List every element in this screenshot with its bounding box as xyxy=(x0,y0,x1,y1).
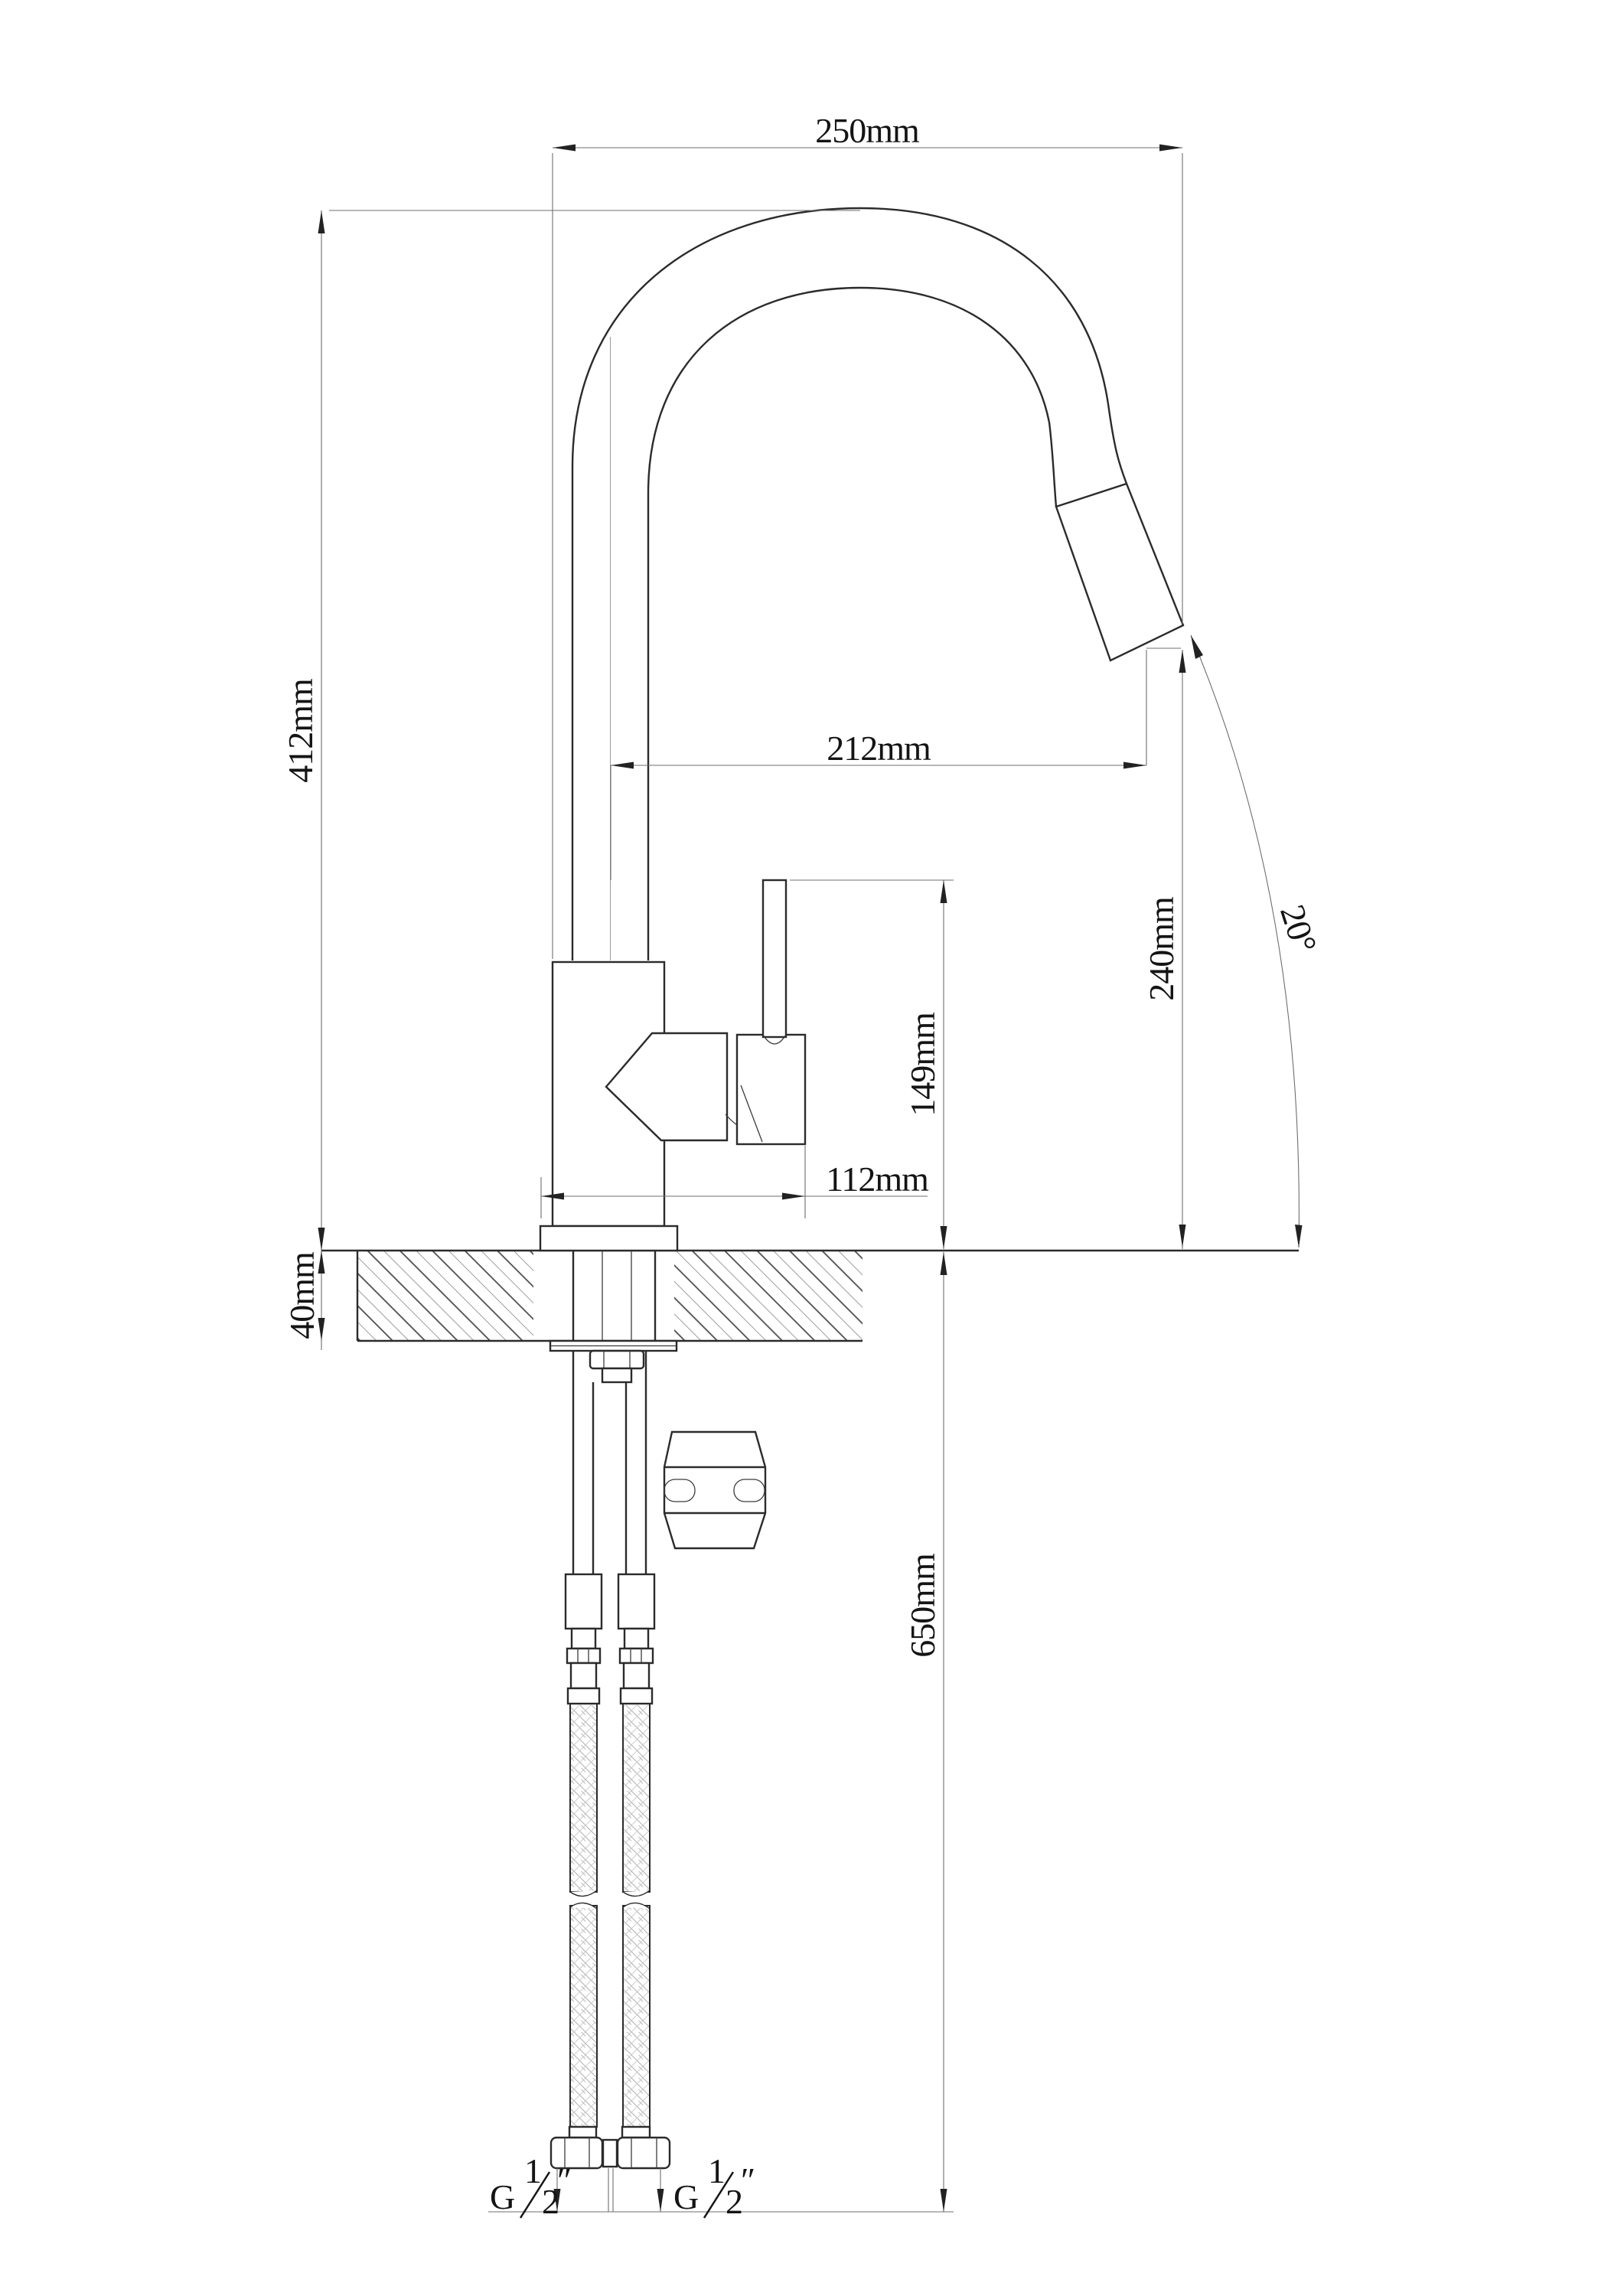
faucet-spout xyxy=(572,208,1183,960)
supply-hoses xyxy=(551,1351,670,2168)
right-neck-upper xyxy=(624,1629,648,1649)
dim-label-spray-angle: 20° xyxy=(1273,900,1324,957)
dim-label-outlet-height: 240mm xyxy=(1142,896,1181,1001)
left-compression-nut xyxy=(567,1649,600,1663)
dim-deck-thickness: 40mm xyxy=(282,1251,325,1350)
left-hose-collar xyxy=(569,2127,596,2138)
dim-outlet-height: 240mm xyxy=(1142,650,1186,1249)
center-end-piece xyxy=(603,2140,617,2167)
left-hose-upper xyxy=(570,1704,597,1892)
dim-label-overall-height: 412mm xyxy=(281,678,320,783)
technical-drawing: 250mm 412mm 40mm 212mm 240mm 149mm xyxy=(0,0,1624,2296)
right-compression-nut xyxy=(620,1649,653,1663)
left-ferrule xyxy=(568,1688,599,1704)
spout-inner-curve xyxy=(648,288,1056,960)
dim-label-base-depth: 112mm xyxy=(826,1159,929,1199)
thread-right-g: G xyxy=(673,2177,698,2216)
handle-lever xyxy=(763,880,786,1037)
dim-hose-length: 650mm xyxy=(903,1252,947,2212)
right-connector-block xyxy=(618,1574,654,1629)
left-connector-block xyxy=(566,1574,602,1629)
right-ferrule xyxy=(621,1688,652,1704)
base-flange xyxy=(540,1226,677,1251)
counter-hole xyxy=(533,1251,674,1341)
left-hose-lower xyxy=(570,1906,597,2127)
left-neck-lower xyxy=(571,1663,596,1688)
faucet-body xyxy=(540,880,805,1251)
thread-right-den: 2 xyxy=(726,2182,742,2221)
thread-right-num: 1 xyxy=(708,2151,725,2190)
dim-outlet-reach: 212mm xyxy=(611,648,1181,880)
thread-left-den: 2 xyxy=(542,2182,559,2221)
counter-deck xyxy=(321,1251,1299,1341)
thread-left-g: G xyxy=(490,2177,514,2216)
spout-outer-curve xyxy=(572,208,1127,960)
right-hose-lower xyxy=(623,1906,650,2127)
mounting-nut xyxy=(664,1432,765,1548)
dim-label-spout-reach: 250mm xyxy=(815,111,920,150)
right-end-nut xyxy=(618,2138,670,2168)
thread-left-unit: ″ xyxy=(557,2161,571,2200)
handle-base xyxy=(737,1035,805,1144)
thread-label-left: G 1 2 ″ xyxy=(490,2151,571,2221)
thread-right-unit: ″ xyxy=(741,2161,755,2200)
dim-spray-angle: 20° xyxy=(1191,635,1324,1247)
right-hose-collar xyxy=(622,2127,650,2138)
dim-label-hose-length: 650mm xyxy=(903,1553,942,1658)
spray-head xyxy=(1056,484,1183,660)
thread-callouts: G 1 2 ″ G 1 2 ″ xyxy=(488,2151,954,2221)
dim-label-outlet-reach: 212mm xyxy=(827,729,931,768)
right-neck-lower xyxy=(624,1663,649,1688)
thread-left-num: 1 xyxy=(524,2151,541,2190)
stud-end xyxy=(602,1368,631,1382)
thread-label-right: G 1 2 ″ xyxy=(673,2151,755,2221)
dim-label-deck-thickness: 40mm xyxy=(282,1251,321,1339)
right-hose-upper xyxy=(623,1704,650,1892)
left-neck-upper xyxy=(572,1629,595,1649)
dim-label-handle-height: 149mm xyxy=(903,1012,942,1117)
mounting-hex-nut xyxy=(590,1351,644,1368)
